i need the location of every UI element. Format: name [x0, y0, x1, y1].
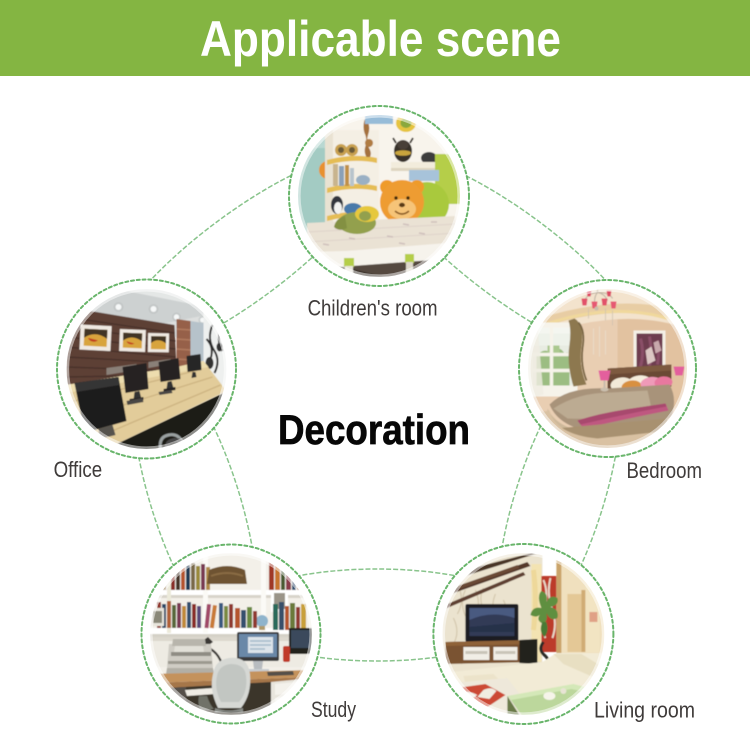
svg-text:Study: Study	[311, 697, 356, 722]
svg-text:Living room: Living room	[594, 698, 695, 723]
svg-text:Office: Office	[54, 457, 103, 482]
svg-text:Decoration: Decoration	[278, 406, 470, 453]
svg-text:Bedroom: Bedroom	[627, 458, 703, 483]
svg-text:Children's room: Children's room	[308, 296, 438, 321]
svg-text:Applicable scene: Applicable scene	[200, 11, 561, 67]
